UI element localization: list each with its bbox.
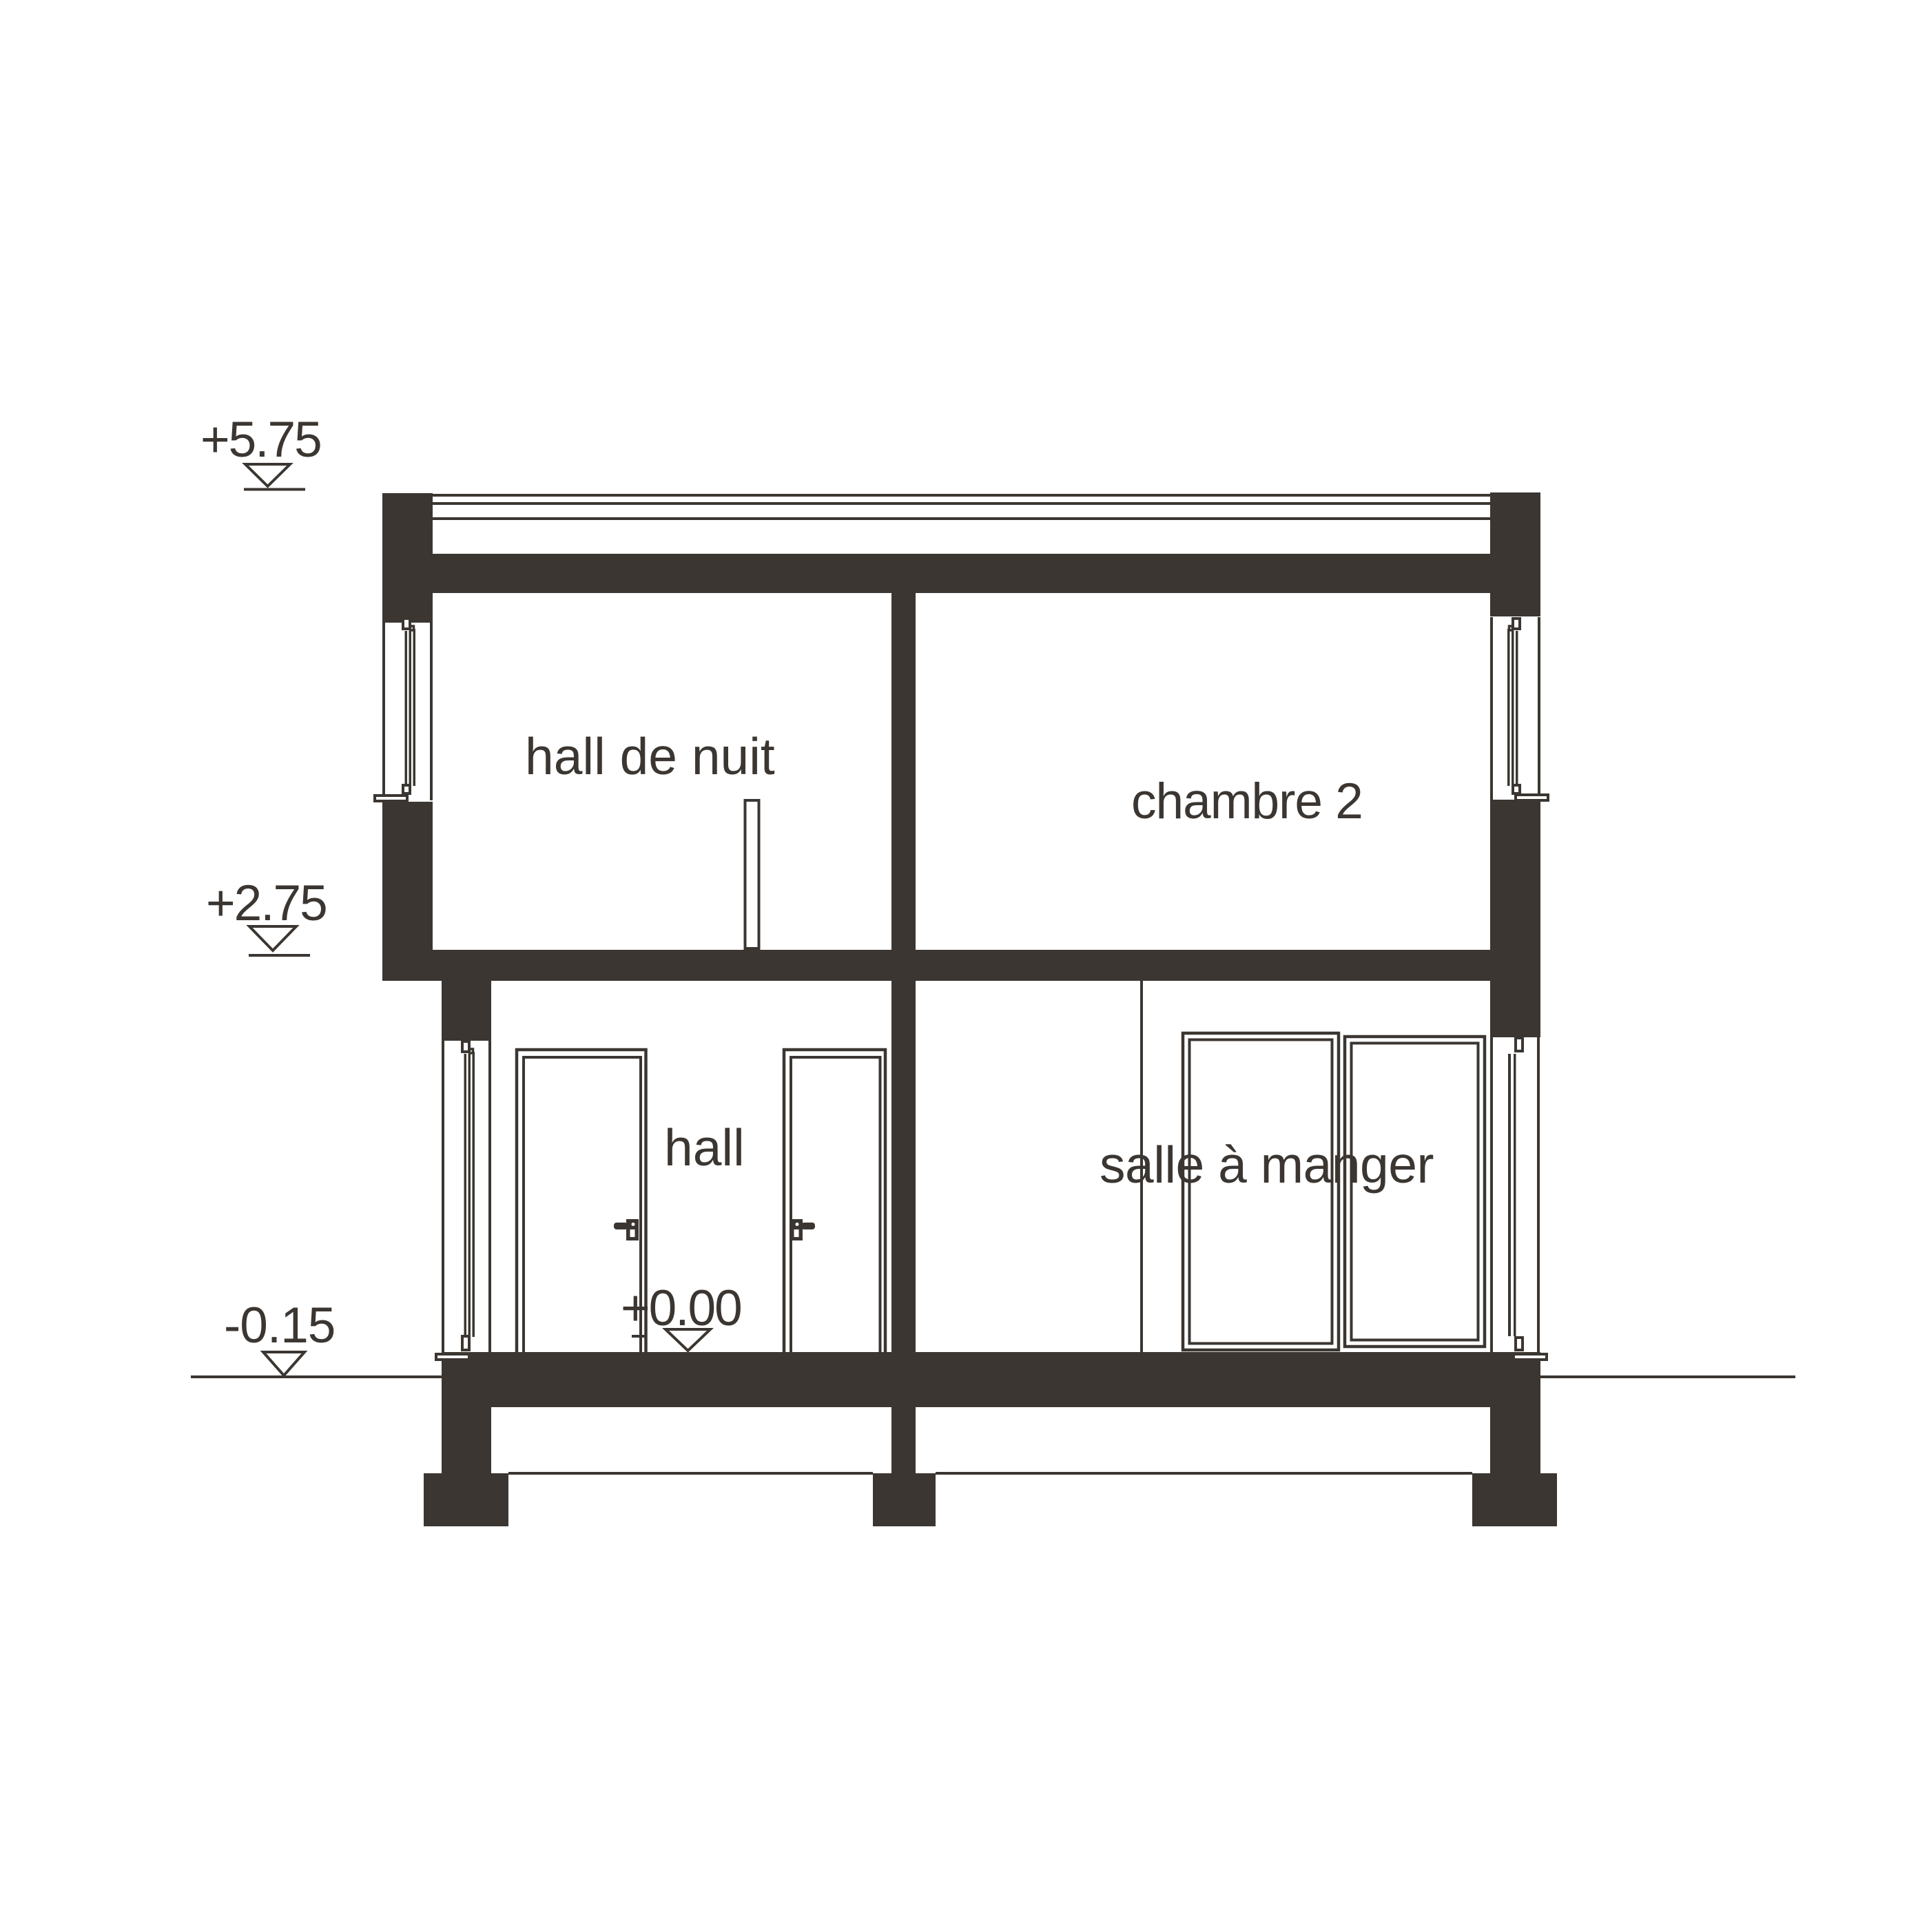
svg-text:chambre 2: chambre 2 <box>1131 773 1363 829</box>
svg-text:+5.75: +5.75 <box>200 412 321 468</box>
svg-text:-0.15: -0.15 <box>224 1298 335 1353</box>
svg-text:+0.00: +0.00 <box>621 1280 741 1336</box>
svg-text:+2.75: +2.75 <box>206 875 327 931</box>
svg-text:hall de nuit: hall de nuit <box>525 727 775 785</box>
svg-text:hall: hall <box>664 1119 745 1176</box>
svg-text:salle à manger: salle à manger <box>1100 1136 1434 1194</box>
